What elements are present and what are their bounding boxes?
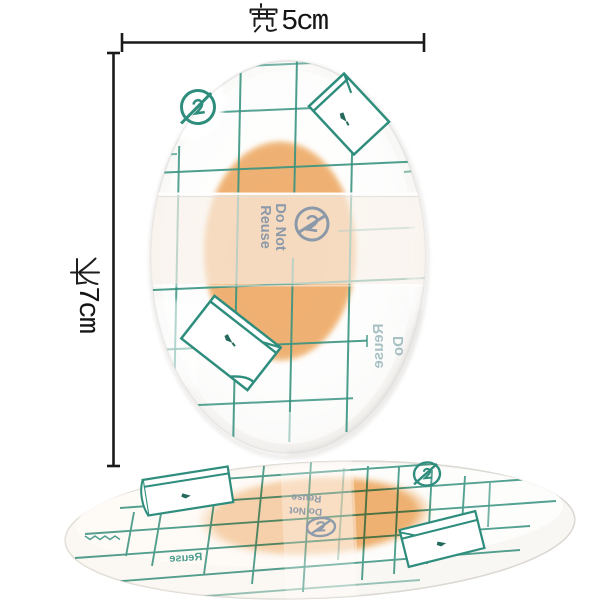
svg-text:Do Not: Do Not: [272, 203, 288, 251]
svg-text:Reuse: Reuse: [169, 551, 203, 565]
svg-text:Reuse: Reuse: [257, 205, 273, 249]
svg-text:Do Not: Do Not: [288, 504, 322, 517]
svg-text:5cm: 5cm: [281, 5, 328, 38]
svg-text:Do: Do: [390, 336, 407, 356]
svg-text:Reuse: Reuse: [291, 491, 322, 504]
svg-text:7cm: 7cm: [71, 286, 104, 333]
svg-text:Reuse: Reuse: [370, 323, 387, 368]
